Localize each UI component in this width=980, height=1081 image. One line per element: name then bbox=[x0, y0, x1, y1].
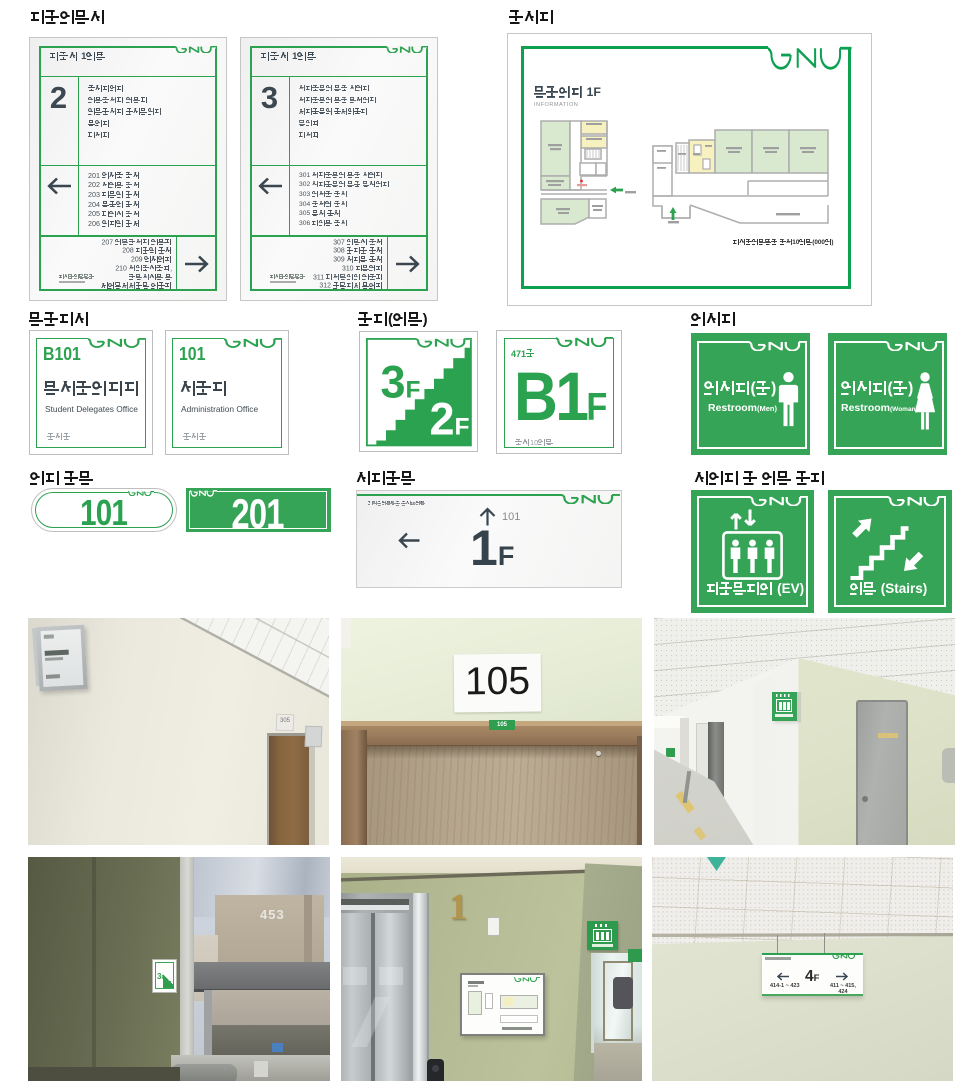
svg-text:3F: 3F bbox=[381, 356, 421, 407]
